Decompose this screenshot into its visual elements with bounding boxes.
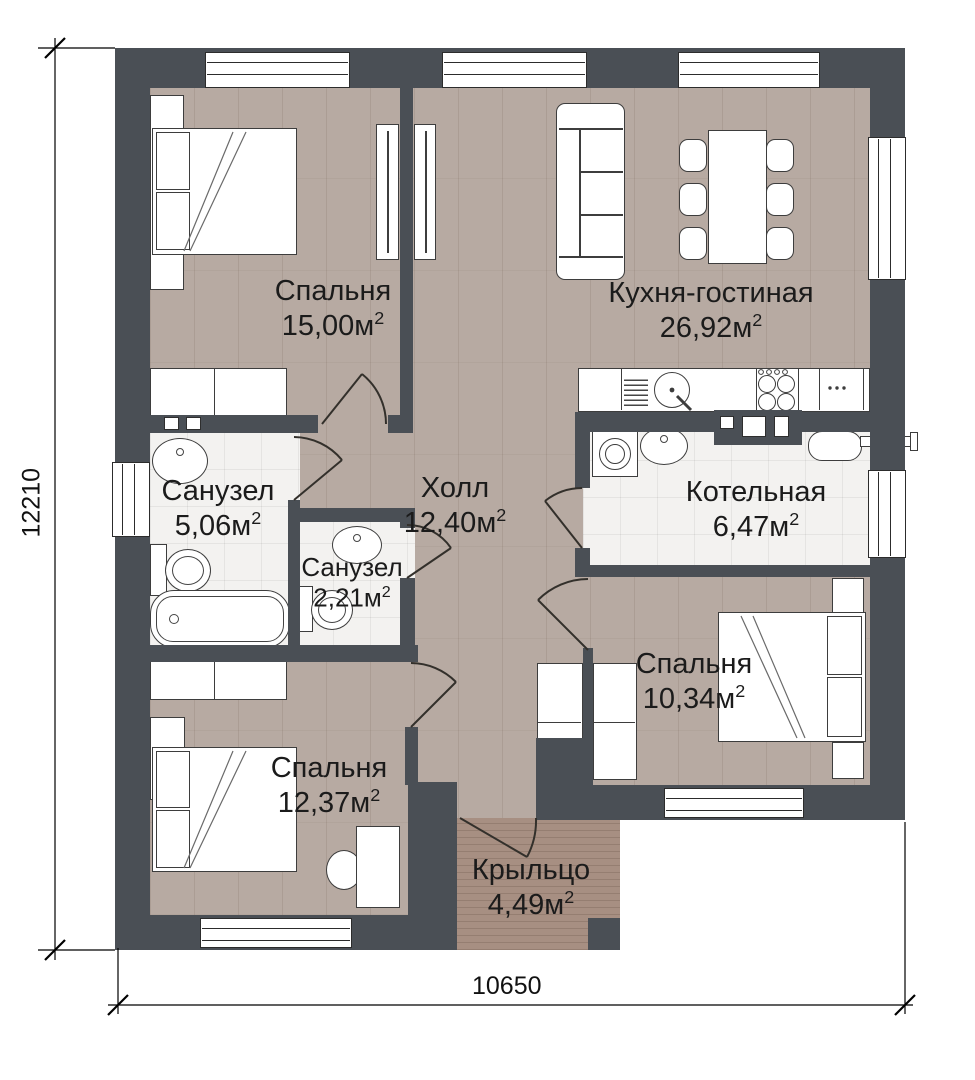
pillow [156, 132, 190, 190]
sofa [556, 103, 625, 280]
chair [679, 227, 707, 260]
wall-bath5-right [288, 500, 300, 655]
nightstand [832, 578, 864, 615]
vent [720, 416, 734, 429]
dresser [150, 368, 215, 418]
pipe-cap [910, 432, 918, 451]
wall-bath2-top [288, 508, 415, 522]
wardrobe [214, 658, 287, 700]
wardrobe [150, 658, 215, 700]
wall-hall-bedroom10-block [536, 738, 593, 785]
porch-pillar [588, 918, 620, 950]
toilet [165, 549, 211, 592]
chair [766, 139, 794, 172]
pillow [156, 192, 190, 250]
window [868, 137, 906, 280]
dimension-width-label: 10650 [472, 972, 542, 1001]
room-label-bedroom-12: Спальня 12,37м2 [271, 752, 388, 820]
wall-bedroom15-kitchen [400, 88, 413, 420]
room-label-boiler: Котельная 6,47м2 [686, 476, 826, 544]
vent [164, 417, 179, 430]
pillow [156, 751, 190, 808]
desk [356, 826, 400, 908]
wall-boiler-left-a [575, 412, 590, 488]
stove [755, 368, 797, 412]
washing-machine [592, 430, 638, 477]
kitchen-sink [654, 372, 690, 408]
chair [679, 183, 707, 216]
window [664, 788, 804, 818]
room-label-bedroom-10: Спальня 10,34м2 [636, 648, 753, 716]
wall-boiler-left-b [575, 548, 590, 565]
wardrobe [593, 663, 637, 780]
bathtub [150, 590, 290, 648]
room-label-porch: Крыльцо 4,49м2 [472, 854, 590, 922]
wardrobe [376, 124, 399, 260]
room-label-hall: Холл 12,40м2 [404, 472, 507, 540]
chair [766, 183, 794, 216]
wall-bedroom15-bottom-b [388, 415, 413, 433]
dining-table [708, 130, 767, 264]
nightstand [832, 742, 864, 779]
dimension-height-label: 12210 [18, 490, 47, 538]
vent [774, 416, 789, 437]
bathroom-sink [640, 427, 688, 465]
floor-plan: Спальня 15,00м2 Кухня-гостиная 26,92м2 С… [0, 0, 975, 1080]
window [112, 462, 150, 537]
pillow [827, 616, 862, 675]
dresser [214, 368, 287, 418]
dish-rack [624, 376, 648, 406]
wall-boiler-bottom [575, 565, 905, 577]
vent [186, 417, 201, 430]
pillow [156, 810, 190, 868]
window [678, 52, 820, 88]
wall-hall-porch-left [408, 782, 457, 950]
wardrobe [414, 124, 436, 260]
chair [679, 139, 707, 172]
wall-bedroom12-top [150, 645, 418, 662]
room-label-kitchen-living: Кухня-гостиная 26,92м2 [608, 277, 813, 345]
vent [742, 416, 766, 437]
window [205, 52, 350, 88]
room-label-bathroom-5: Санузел 5,06м2 [162, 475, 275, 543]
window [442, 52, 587, 88]
room-label-bathroom-2: Санузел 2,21м2 [301, 553, 402, 613]
chair [766, 227, 794, 260]
pillow [827, 677, 862, 737]
window [868, 470, 906, 558]
window [200, 918, 352, 948]
room-label-bedroom-15: Спальня 15,00м2 [275, 275, 392, 343]
wall-bedroom12-right [405, 727, 418, 785]
boiler-unit [808, 431, 862, 461]
kitchen-counter [578, 368, 870, 412]
